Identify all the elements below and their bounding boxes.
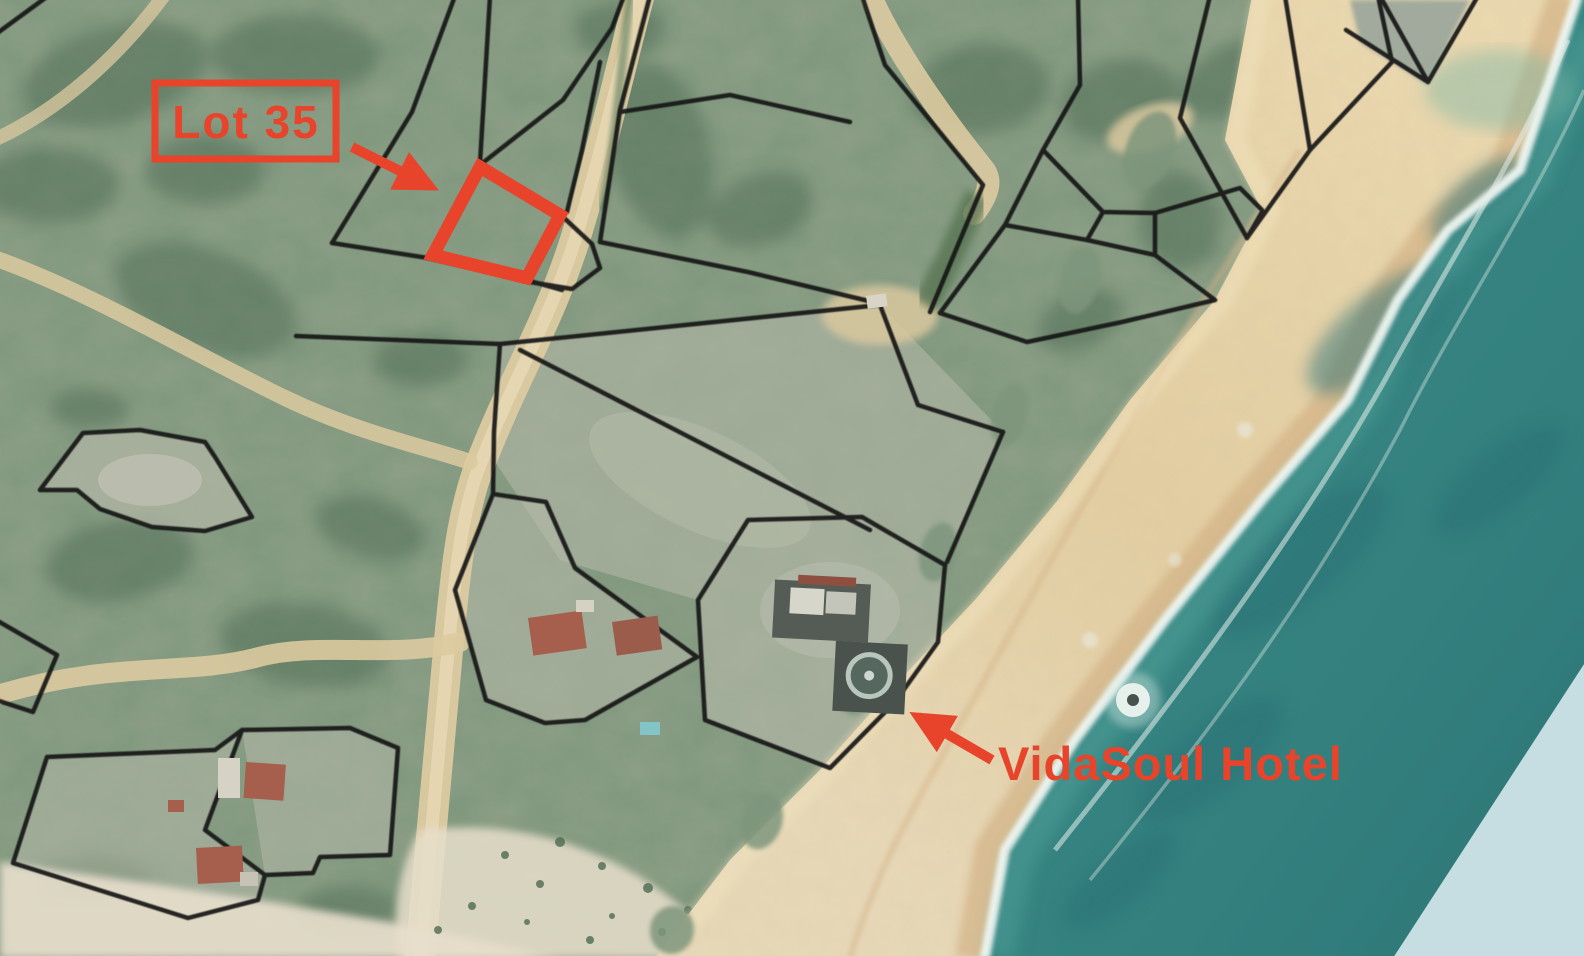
hotel-label: VidaSoul Hotel (998, 737, 1343, 790)
aerial-parcel-map: Lot 35 VidaSoul Hotel (0, 0, 1584, 956)
map-canvas: Lot 35 VidaSoul Hotel (0, 0, 1584, 956)
lot35-label: Lot 35 (172, 96, 319, 148)
small-pool (640, 722, 660, 735)
junction-hut (866, 293, 888, 309)
